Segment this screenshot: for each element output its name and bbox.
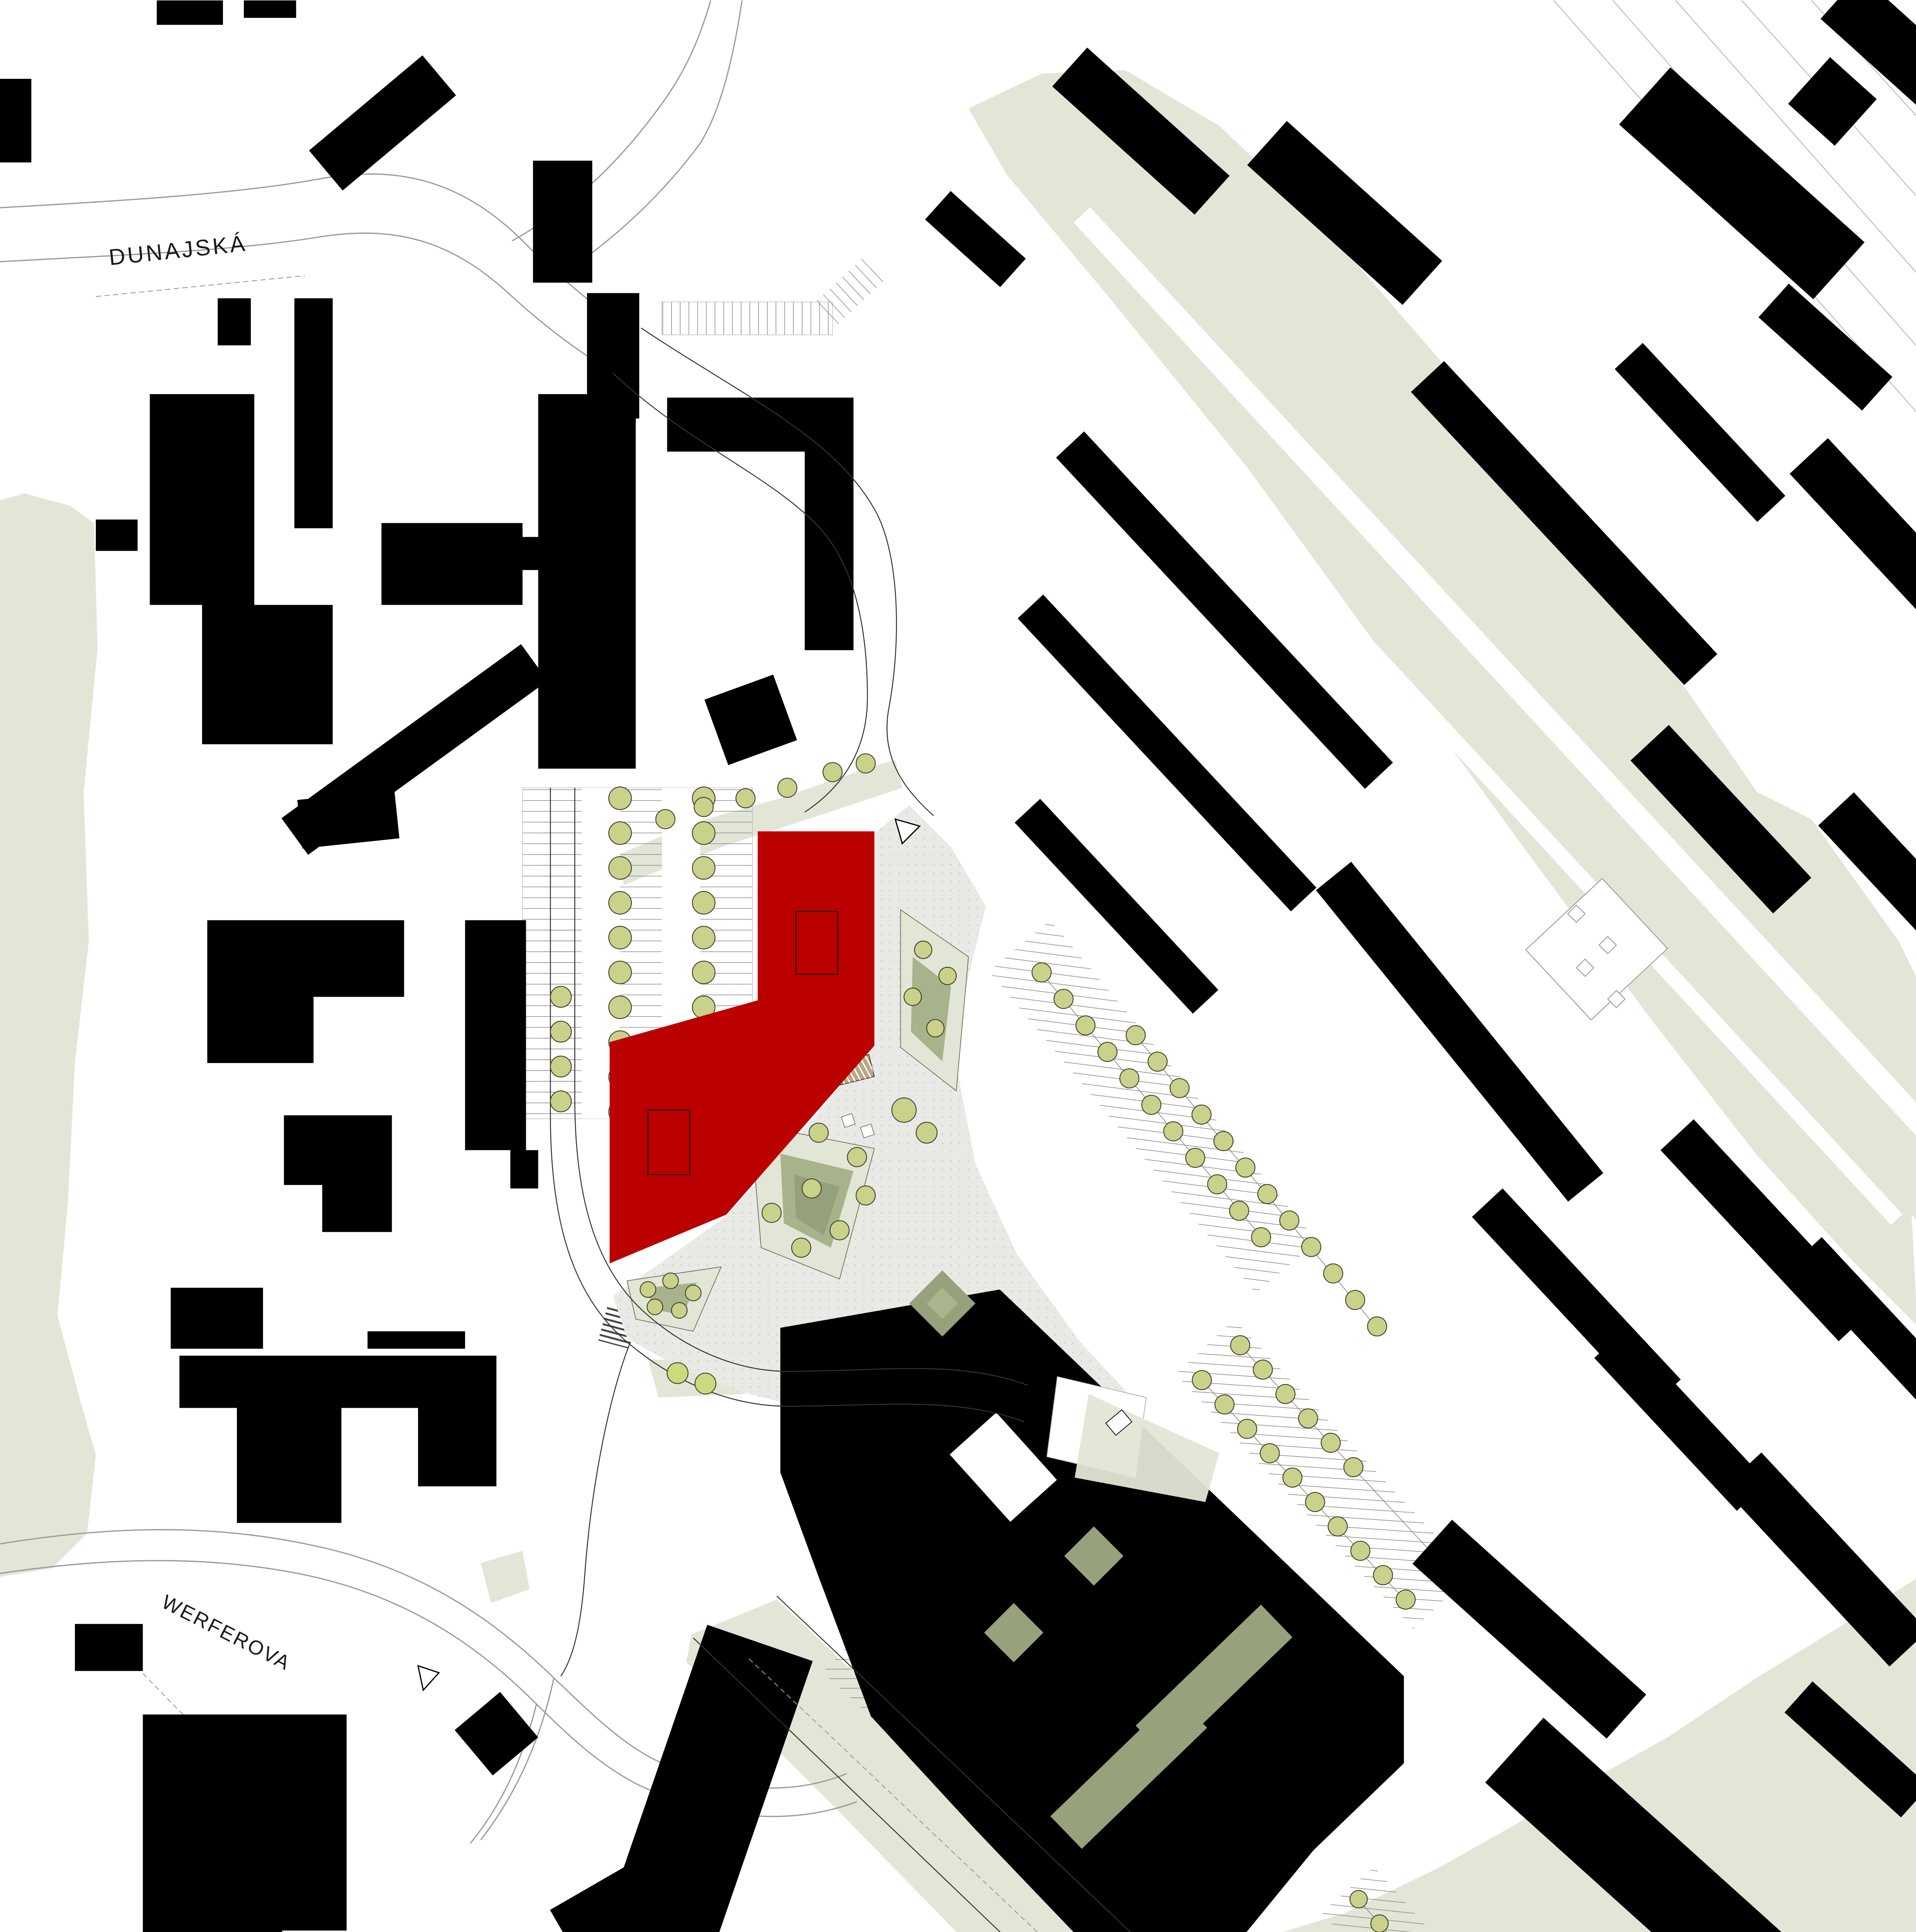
street-parking-strip (662, 302, 833, 335)
site-plan-canvas: DUNAJSKÁ WERFEROVA 0 20 50 100 (0, 0, 1916, 1932)
